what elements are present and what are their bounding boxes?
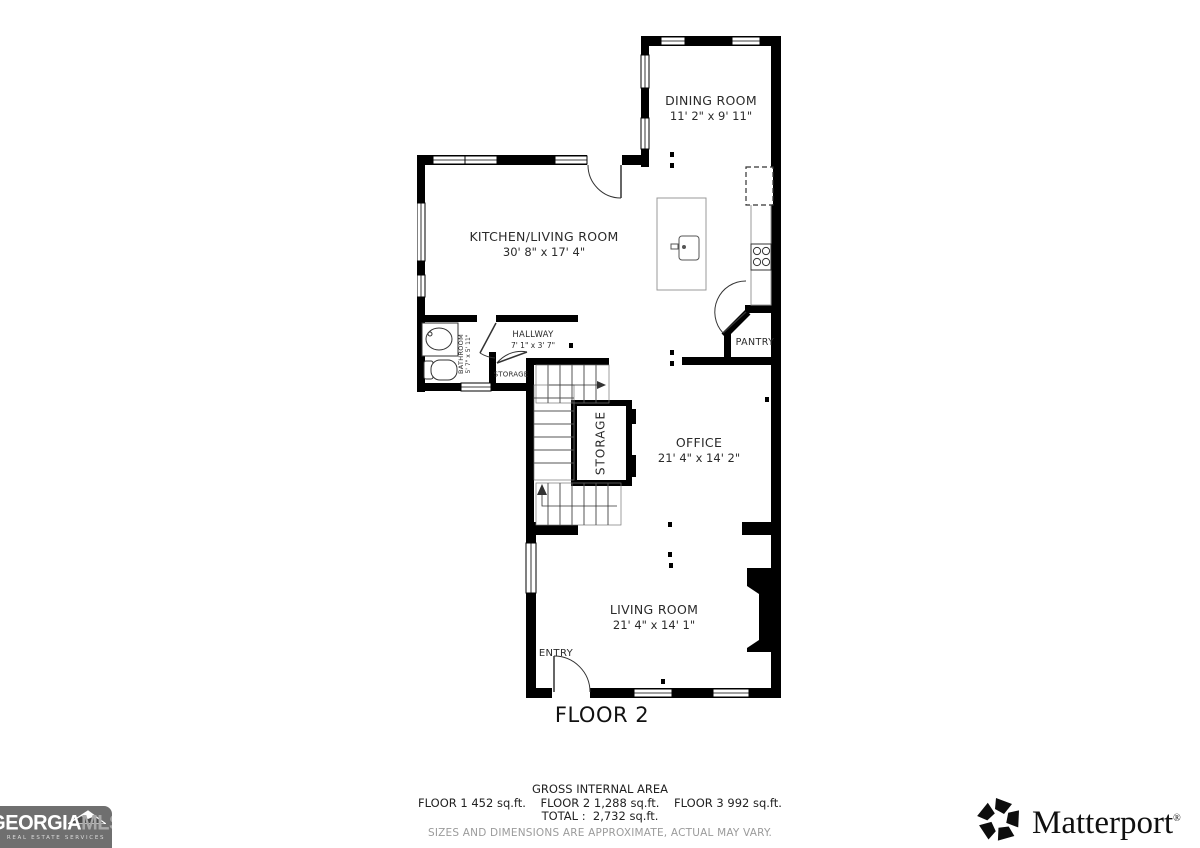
room-dims: 11' 2" x 9' 11" bbox=[665, 109, 757, 123]
room-label-entry: ENTRY bbox=[539, 648, 573, 661]
room-name: BATHROOM bbox=[457, 334, 465, 374]
room-label-kitchen: KITCHEN/LIVING ROOM 30' 8" x 17' 4" bbox=[469, 229, 618, 259]
room-label-living: LIVING ROOM 21' 4" x 14' 1" bbox=[610, 602, 698, 632]
matterport-wordmark: Matterport® bbox=[1032, 797, 1181, 845]
floor-areas-line: FLOOR 1 452 sq.ft. FLOOR 2 1,288 sq.ft. … bbox=[300, 797, 900, 811]
georgia-text: GEORGIA bbox=[0, 811, 81, 834]
room-label-bathroom: BATHROOM 5' 7" x 5' 11" bbox=[457, 334, 473, 374]
room-dims: 21' 4" x 14' 1" bbox=[610, 618, 698, 632]
dining-left-window-2 bbox=[641, 118, 649, 149]
room-label-office: OFFICE 21' 4" x 14' 2" bbox=[658, 435, 740, 465]
kitchen-counter bbox=[751, 203, 771, 305]
stairs-up-arrow bbox=[549, 381, 606, 389]
room-name: LIVING ROOM bbox=[610, 602, 698, 618]
bathtub bbox=[422, 323, 458, 356]
matterport-pinwheel-icon bbox=[976, 797, 1022, 843]
matterport-text: Matterport bbox=[1032, 805, 1173, 841]
room-label-storage-closet: STORAGE bbox=[494, 371, 529, 380]
room-name: STORAGE bbox=[494, 371, 529, 380]
kitchen-left-window-1 bbox=[417, 203, 425, 261]
room-name: KITCHEN/LIVING ROOM bbox=[469, 229, 618, 245]
dining-left-window-1 bbox=[641, 55, 649, 88]
room-name: PANTRY bbox=[736, 337, 775, 349]
kitchen-left-window-2 bbox=[417, 275, 425, 297]
room-name: HALLWAY bbox=[511, 330, 555, 341]
kitchen-door bbox=[588, 165, 621, 198]
living-bottom-window-2 bbox=[713, 689, 749, 697]
room-label-pantry: PANTRY bbox=[736, 337, 775, 349]
kitchen-top-window-double bbox=[433, 156, 497, 164]
room-dims: 7' 1" x 3' 7" bbox=[511, 341, 555, 350]
kitchen-island bbox=[657, 198, 706, 290]
room-label-dining: DINING ROOM 11' 2" x 9' 11" bbox=[665, 93, 757, 123]
stove bbox=[751, 244, 771, 270]
floor-plan: DINING ROOM 11' 2" x 9' 11" KITCHEN/LIVI… bbox=[417, 36, 783, 700]
georgia-mls-logo: GEORGIAMLS REAL ESTATE SERVICES bbox=[0, 806, 112, 848]
refrigerator bbox=[746, 167, 773, 205]
kitchen-top-window-2 bbox=[555, 156, 587, 164]
closet-door bbox=[497, 351, 527, 363]
room-dims: 30' 8" x 17' 4" bbox=[469, 245, 618, 259]
total-area-line: TOTAL : 2,732 sq.ft. bbox=[300, 810, 900, 824]
room-name: STORAGE bbox=[594, 411, 609, 475]
toilet bbox=[424, 360, 457, 380]
gross-internal-area-title: GROSS INTERNAL AREA bbox=[300, 783, 900, 797]
stairs-down-arrow bbox=[537, 484, 617, 506]
room-dims: 5' 7" x 5' 11" bbox=[465, 334, 473, 374]
floor-plan-page: DINING ROOM 11' 2" x 9' 11" KITCHEN/LIVI… bbox=[0, 0, 1200, 848]
disclaimer-text: SIZES AND DIMENSIONS ARE APPROXIMATE, AC… bbox=[300, 827, 900, 840]
floor-title: FLOOR 2 bbox=[555, 703, 649, 727]
bathroom-window bbox=[461, 383, 491, 391]
area-summary: GROSS INTERNAL AREA FLOOR 1 452 sq.ft. F… bbox=[300, 783, 900, 840]
entry-door bbox=[554, 656, 590, 692]
dining-top-window-2 bbox=[732, 37, 760, 45]
room-name: OFFICE bbox=[658, 435, 740, 451]
georgia-mls-tagline: REAL ESTATE SERVICES bbox=[7, 835, 105, 841]
dining-top-window-1 bbox=[661, 37, 685, 45]
room-name: ENTRY bbox=[539, 648, 573, 661]
room-label-hallway: HALLWAY 7' 1" x 3' 7" bbox=[511, 330, 555, 350]
living-left-window bbox=[526, 543, 536, 593]
georgia-mls-wordmark: GEORGIAMLS bbox=[0, 813, 112, 834]
room-name: DINING ROOM bbox=[665, 93, 757, 109]
living-bottom-window-1 bbox=[634, 689, 672, 697]
room-label-storage-stairs: STORAGE bbox=[594, 411, 609, 475]
fireplace bbox=[747, 568, 773, 652]
mls-text: MLS bbox=[81, 811, 112, 834]
matterport-logo: Matterport® bbox=[976, 797, 1181, 845]
registered-mark: ® bbox=[1173, 813, 1181, 824]
room-dims: 21' 4" x 14' 2" bbox=[658, 451, 740, 465]
